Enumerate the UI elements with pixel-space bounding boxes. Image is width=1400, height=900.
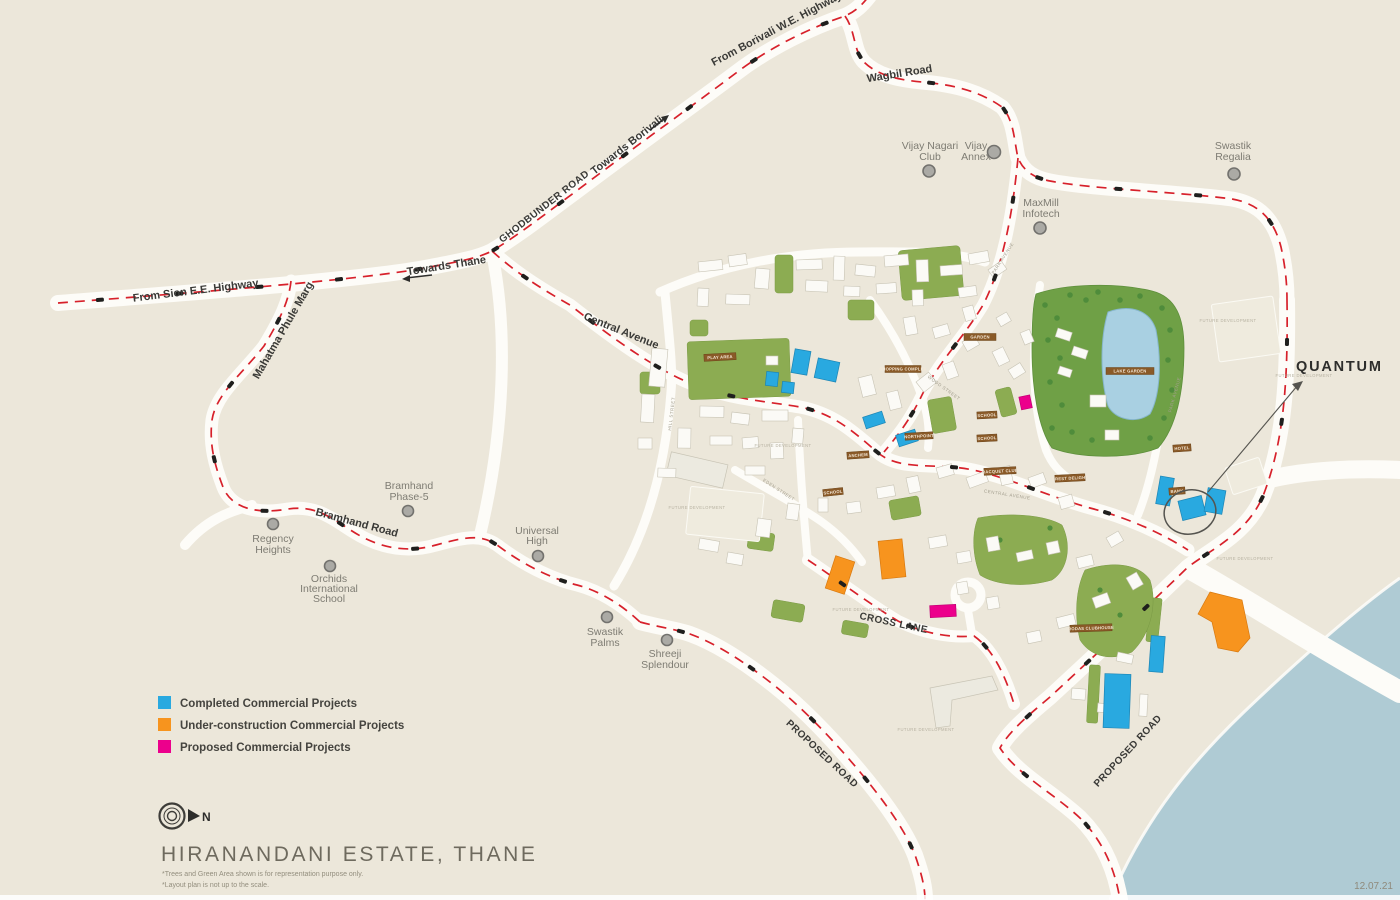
proposed-project bbox=[1019, 395, 1032, 410]
tag-school-2: SCHOOL bbox=[977, 435, 997, 441]
landmark-swastik-regalia: Swastik Regalia bbox=[1215, 140, 1252, 180]
landmark-vijay-nagari-club: Vijay Nagari Club bbox=[902, 140, 958, 177]
label-towards-borivali: Towards Borivali bbox=[589, 114, 669, 178]
label-borivali-highway: From Borivali W.E. Highway bbox=[710, 0, 845, 69]
road-north-south bbox=[480, 253, 502, 535]
label-sion-highway: From Sion E.E. Highway bbox=[132, 277, 260, 304]
svg-text:Regalia: Regalia bbox=[1215, 151, 1251, 163]
svg-text:High: High bbox=[526, 535, 548, 547]
landmark-regency-heights: Regency Heights bbox=[252, 519, 294, 557]
landmark-orchids-international-school: Orchids International School bbox=[300, 561, 358, 606]
legend-item-completed: Completed Commercial Projects bbox=[158, 696, 357, 710]
legend: Completed Commercial Projects Under-cons… bbox=[158, 696, 404, 754]
lake bbox=[1102, 309, 1159, 420]
north-arrow-icon bbox=[188, 809, 200, 822]
tag-lake-garden: LAKE GARDEN bbox=[1114, 369, 1147, 374]
proposed-project bbox=[930, 604, 957, 617]
page-title: HIRANANDANI ESTATE, THANE bbox=[161, 843, 538, 866]
under-construction-project bbox=[878, 539, 906, 579]
legend-swatch-proposed bbox=[158, 740, 171, 753]
completed-project bbox=[814, 358, 840, 382]
completed-project bbox=[765, 371, 778, 386]
legend-item-proposed: Proposed Commercial Projects bbox=[158, 740, 351, 754]
svg-text:Infotech: Infotech bbox=[1022, 208, 1060, 220]
svg-text:Splendour: Splendour bbox=[641, 659, 689, 671]
compass: N bbox=[160, 804, 211, 829]
svg-text:Palms: Palms bbox=[590, 637, 619, 649]
legend-swatch-completed bbox=[158, 696, 171, 709]
north-label: N bbox=[202, 810, 211, 824]
quantum-label: QUANTUM bbox=[1296, 359, 1383, 375]
label-ghodbunder-road: GHODBUNDER ROAD bbox=[497, 169, 591, 246]
road-branch-east bbox=[1266, 469, 1400, 480]
svg-text:Under-construction Commercial: Under-construction Commercial Projects bbox=[180, 720, 404, 732]
area-note: FUTURE DEVELOPMENT bbox=[1217, 556, 1274, 561]
svg-text:Proposed Commercial Projects: Proposed Commercial Projects bbox=[180, 742, 351, 754]
page-edge bbox=[0, 895, 1400, 900]
svg-text:School: School bbox=[313, 593, 345, 605]
area-note: FUTURE DEVELOPMENT bbox=[1200, 318, 1257, 323]
completed-project bbox=[1103, 674, 1131, 729]
completed-project bbox=[791, 349, 811, 375]
svg-text:Heights: Heights bbox=[255, 544, 291, 556]
svg-text:Club: Club bbox=[919, 151, 941, 163]
footnote-2: *Layout plan is not up to the scale. bbox=[162, 882, 269, 889]
completed-project bbox=[781, 381, 794, 393]
map-canvas: PLAY AREA SHOPPING COMPLEX GARDEN LAKE G… bbox=[0, 0, 1400, 900]
area-note: FUTURE DEVELOPMENT bbox=[669, 505, 726, 510]
tag-hotel: HOTEL bbox=[1174, 445, 1190, 451]
quantum-building bbox=[1178, 495, 1206, 520]
completed-project bbox=[1149, 636, 1165, 673]
landmark-bramhand-phase-5: Bramhand Phase-5 bbox=[385, 480, 434, 517]
legend-item-under-construction: Under-construction Commercial Projects bbox=[158, 718, 404, 732]
area-note: FUTURE DEVELOPMENT bbox=[755, 443, 812, 448]
estate-map: PLAY AREA SHOPPING COMPLEX GARDEN LAKE G… bbox=[0, 0, 1400, 900]
street-roundabout-link bbox=[968, 610, 972, 634]
landmark-swastik-palms: Swastik Palms bbox=[587, 612, 624, 650]
svg-text:Phase-5: Phase-5 bbox=[389, 491, 428, 503]
date-stamp: 12.07.21 bbox=[1354, 881, 1393, 892]
tag-garden: GARDEN bbox=[970, 335, 989, 340]
svg-text:Completed Commercial Projects: Completed Commercial Projects bbox=[180, 698, 357, 710]
completed-project bbox=[1204, 488, 1226, 515]
footnote-1: *Trees and Green Area shown is for repre… bbox=[162, 871, 363, 878]
under-construction-project bbox=[1198, 592, 1250, 652]
street-west-stub bbox=[185, 505, 252, 545]
landmark-vijay-annex: Vijay Annex bbox=[961, 140, 1000, 163]
area-note: FUTURE DEVELOPMENT bbox=[898, 727, 955, 732]
landmark-maxmill-infotech: MaxMill Infotech bbox=[1022, 197, 1060, 234]
completed-project bbox=[863, 411, 886, 429]
legend-swatch-under-construction bbox=[158, 718, 171, 731]
tag-shopping-complex: SHOPPING COMPLEX bbox=[879, 367, 926, 372]
svg-text:Towards Borivali: Towards Borivali bbox=[589, 114, 666, 178]
tag-school-1: SCHOOL bbox=[977, 412, 997, 418]
